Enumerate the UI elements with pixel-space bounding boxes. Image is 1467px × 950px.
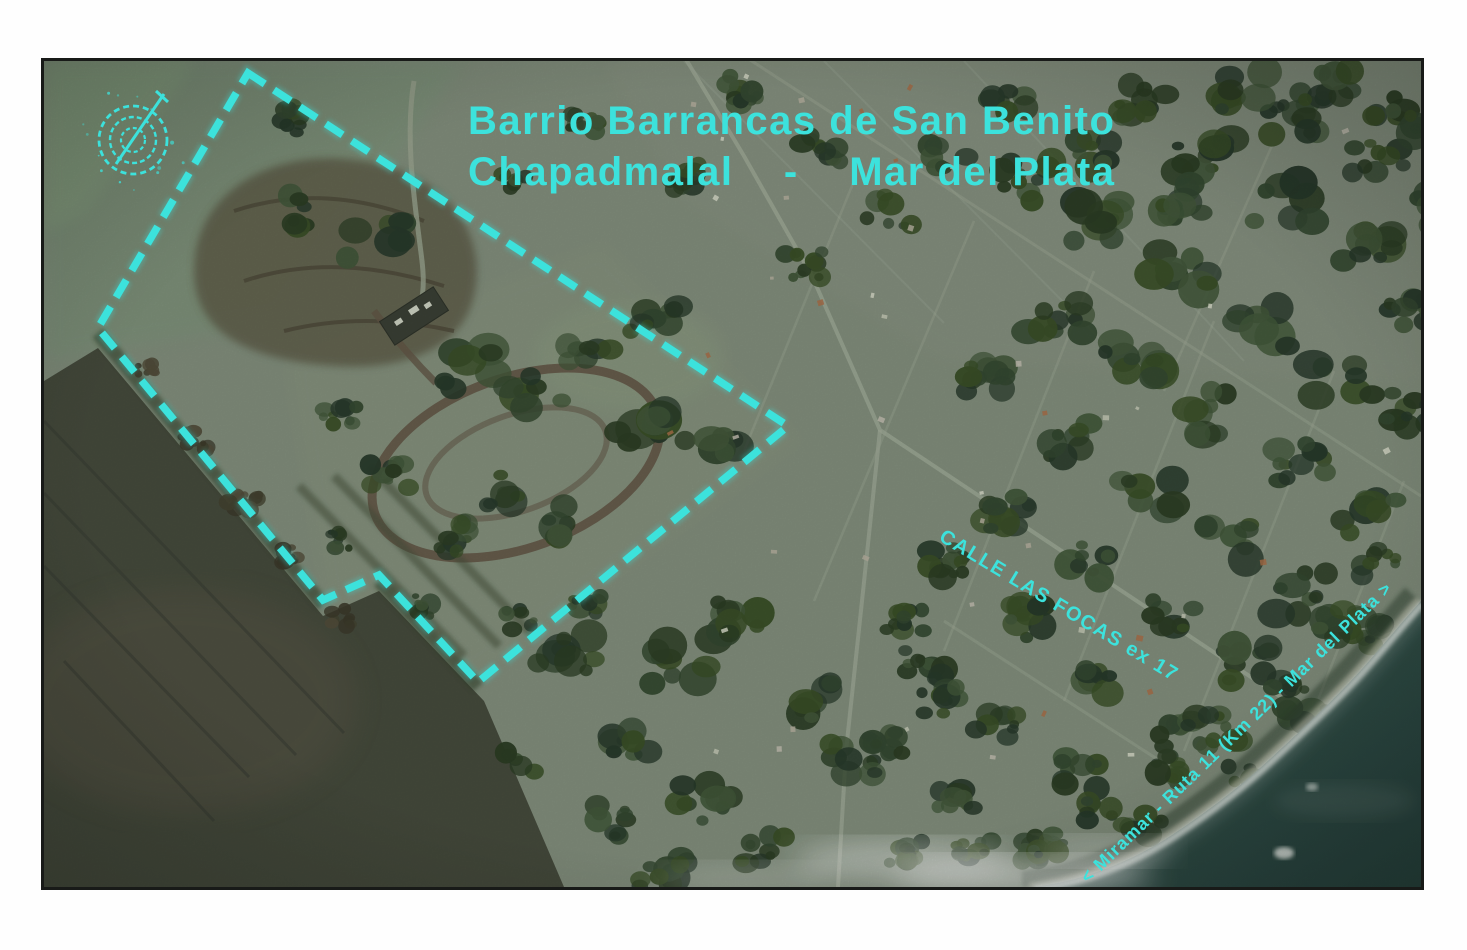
- aerial-photo: Barrio Barrancas de San Benito Chapadmal…: [44, 61, 1421, 887]
- map-title-line2: Chapadmalal - Mar del Plata: [468, 150, 1115, 194]
- aerial-photo-frame: Barrio Barrancas de San Benito Chapadmal…: [41, 58, 1424, 890]
- map-title-line1: Barrio Barrancas de San Benito: [468, 99, 1115, 143]
- scanned-map-page: Barrio Barrancas de San Benito Chapadmal…: [0, 0, 1467, 950]
